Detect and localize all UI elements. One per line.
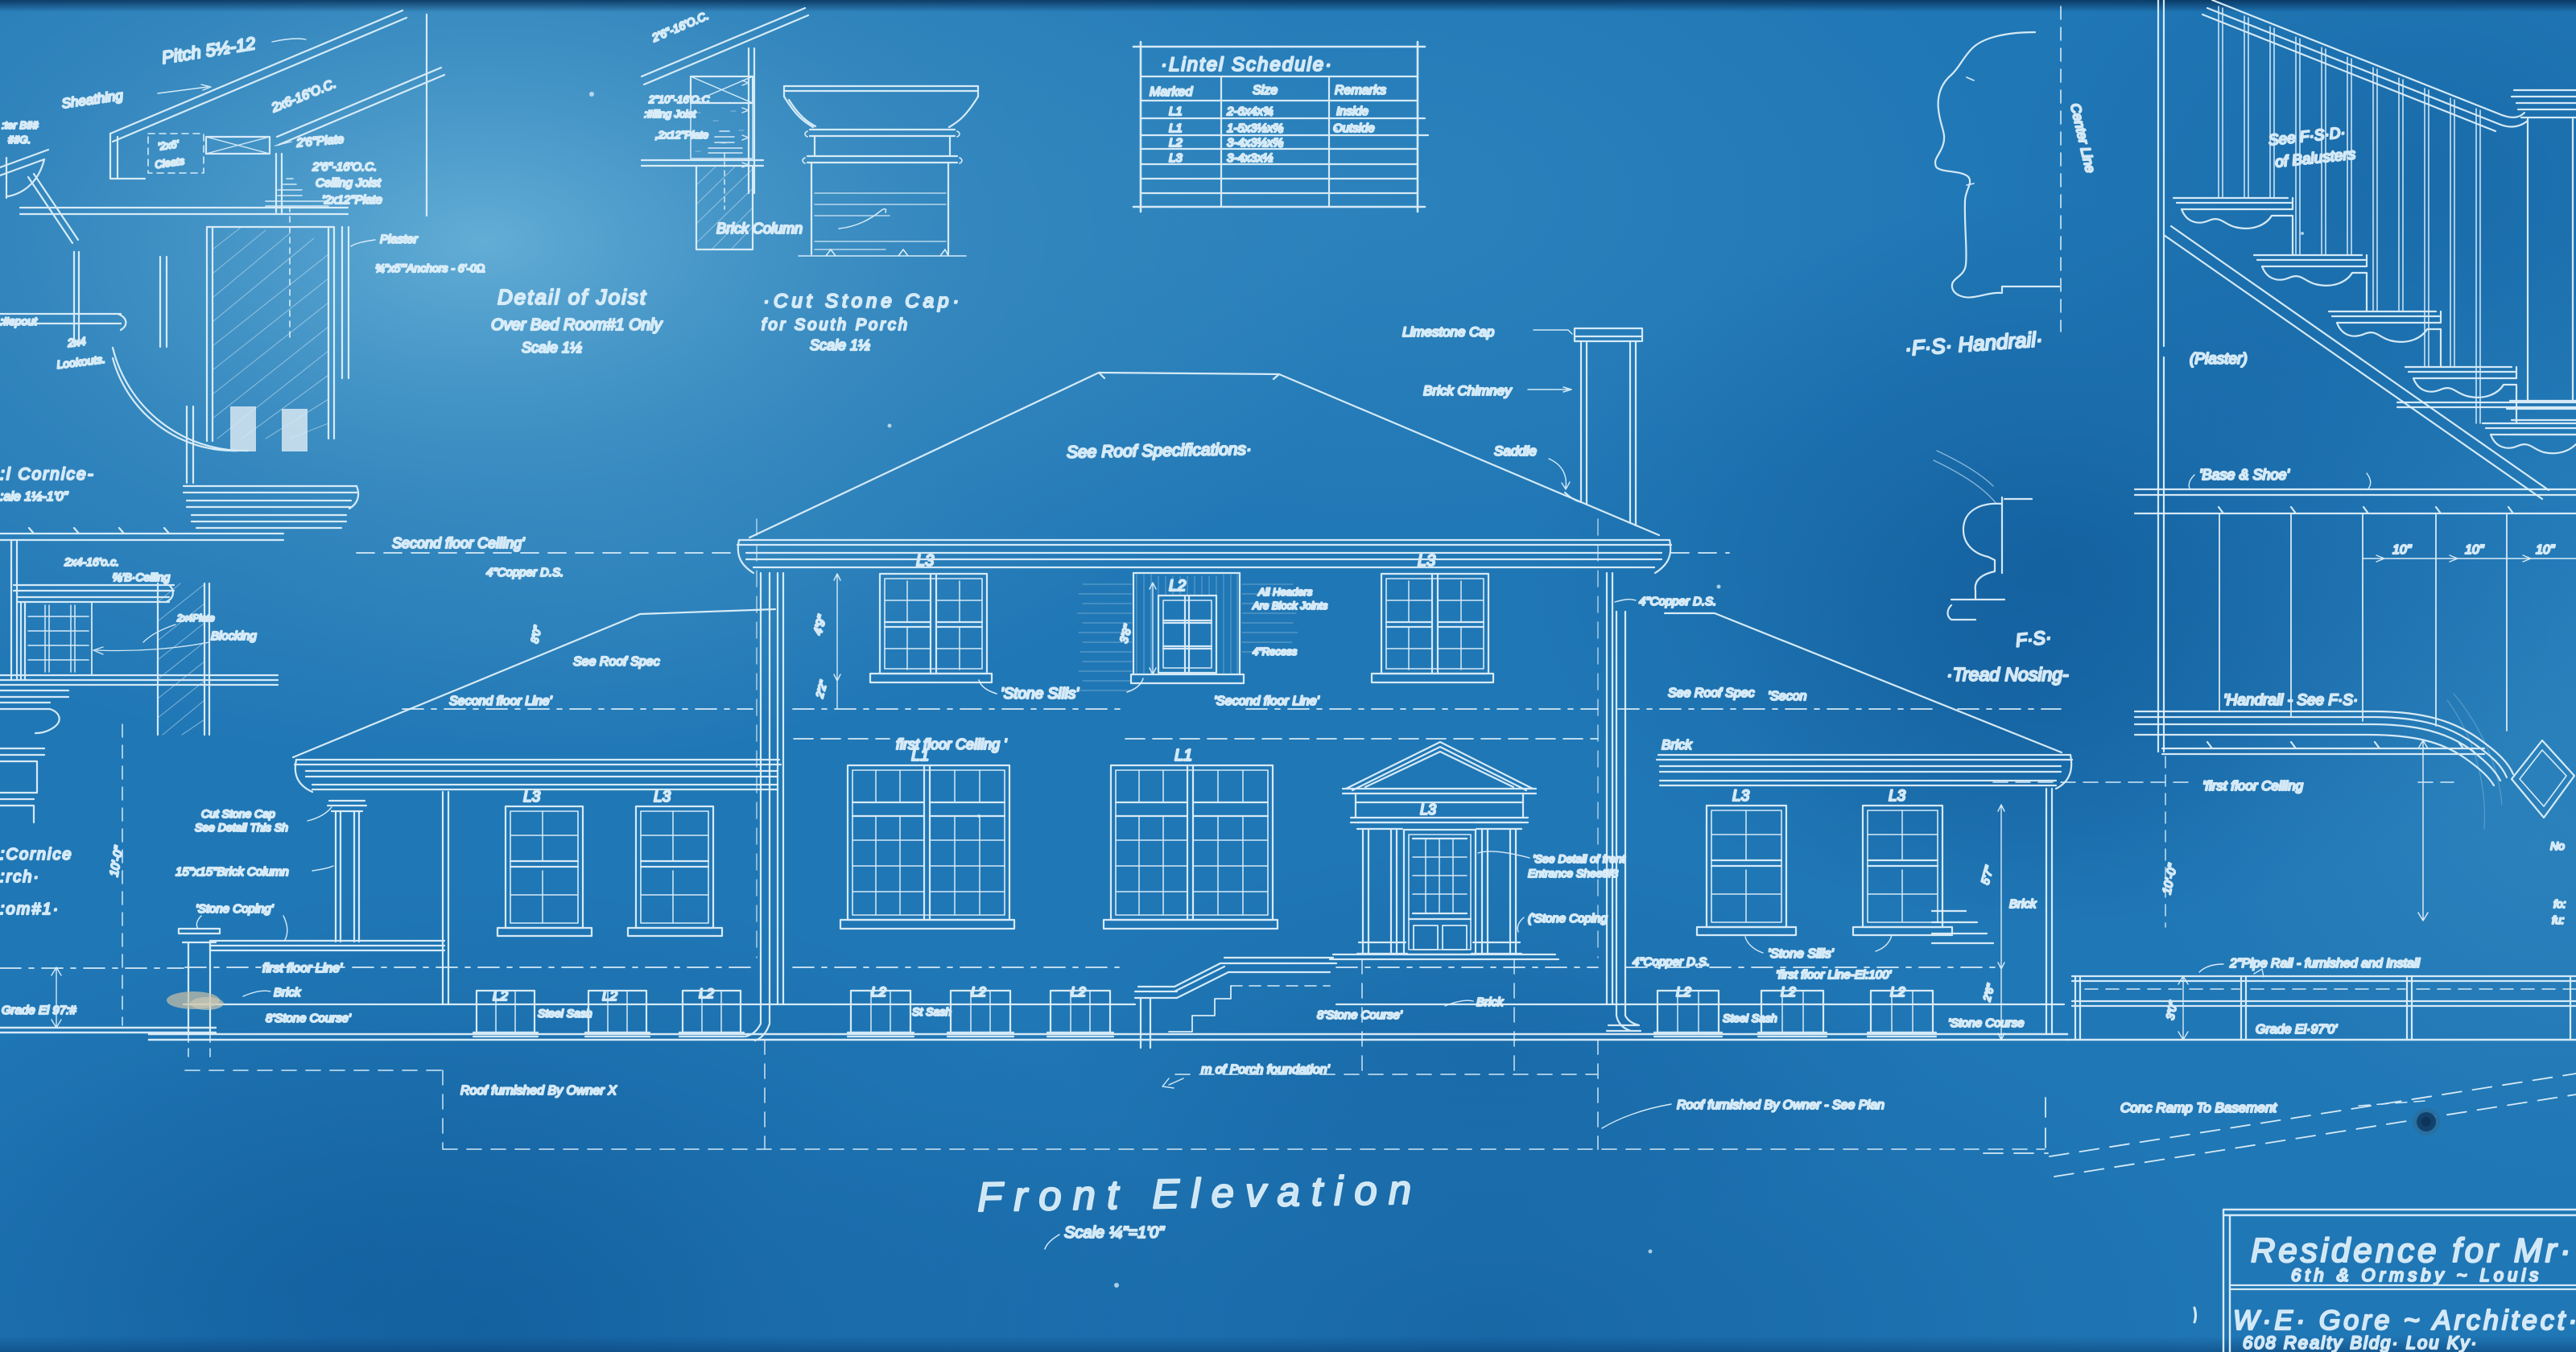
svg-text:L3: L3 [523,789,541,806]
svg-text:10": 10" [2536,543,2556,557]
svg-text:St Sash: St Sash [912,1005,952,1018]
svg-text:Saddle: Saddle [1494,443,1537,459]
svg-text:Inside: Inside [1336,105,1368,118]
svg-text:No: No [2550,839,2565,852]
svg-text:first floor Line': first floor Line' [262,962,343,975]
svg-text:2"10"-16'O.C: 2"10"-16'O.C [648,93,710,105]
svg-text::#spout: :#spout [0,315,38,328]
svg-text:8'Stone Course': 8'Stone Course' [1317,1008,1403,1022]
svg-text:Steel Sash: Steel Sash [1723,1012,1777,1024]
svg-text::rch·: :rch· [0,868,40,886]
svg-text:('Stone Coping: ('Stone Coping [1528,912,1608,925]
svg-text:10": 10" [2392,543,2413,557]
svg-text:L3: L3 [654,789,671,806]
svg-text:'Second floor Line': 'Second floor Line' [1214,695,1320,708]
svg-text:L1: L1 [1169,122,1183,135]
svg-text:3-4x3x½: 3-4x3x½ [1227,151,1274,165]
svg-text:'Base & Shoe': 'Base & Shoe' [2199,467,2290,483]
svg-text:L2: L2 [493,988,508,1004]
svg-text:6th & Ormsby ~ Louis: 6th & Ormsby ~ Louis [2291,1265,2542,1285]
svg-text:⅝'B·Ceiling: ⅝'B·Ceiling [113,571,170,583]
svg-text:2"Pipe Rail - furnished and In: 2"Pipe Rail - furnished and Install [2229,957,2420,971]
svg-text:L2: L2 [971,984,986,1000]
svg-text::ale 1½-1'0": :ale 1½-1'0" [0,490,69,504]
svg-text:¾"x5"'Anchors - 6'-0Ω: ¾"x5"'Anchors - 6'-0Ω [375,262,485,274]
svg-text:Front Elevation: Front Elevation [977,1166,1423,1220]
svg-text:m of Porch foundation': m of Porch foundation' [1201,1063,1331,1077]
svg-text:2x4: 2x4 [66,334,87,349]
svg-text:L1: L1 [1169,105,1183,118]
svg-text:L3: L3 [1418,552,1435,570]
svg-text:Brick: Brick [274,986,302,1000]
svg-text:4"Copper D.S.: 4"Copper D.S. [1639,595,1716,608]
svg-text:W·E· Gore ~ Architect·: W·E· Gore ~ Architect· [2233,1305,2576,1336]
svg-text:4"Copper D.S.: 4"Copper D.S. [1633,955,1710,969]
svg-text:'2x12"Plate: '2x12"Plate [322,193,382,207]
svg-text:Plaster: Plaster [380,233,419,246]
svg-text:Marked: Marked [1150,85,1193,99]
svg-text:4"Recess: 4"Recess [1253,645,1298,657]
svg-text:Brick: Brick [1476,995,1505,1009]
svg-text::l Cornice-: :l Cornice- [0,465,95,484]
svg-text:Brick Chimney: Brick Chimney [1423,383,1513,398]
svg-text:2x4Plate: 2x4Plate [176,612,215,624]
svg-text:Second floor Line': Second floor Line' [449,695,553,708]
svg-text:·Lintel Schedule·: ·Lintel Schedule· [1161,54,1333,76]
svg-text:'Stone Sills': 'Stone Sills' [1768,947,1835,961]
svg-text:Blocking: Blocking [211,629,257,643]
svg-text:Remarks: Remarks [1335,84,1386,97]
svg-text:F·S·: F·S· [2015,626,2053,651]
svg-text:L3: L3 [1420,802,1436,818]
svg-text:L2: L2 [699,986,714,1001]
svg-text:Conc Ramp To Basement: Conc Ramp To Basement [2120,1100,2277,1115]
svg-text::Cornice: :Cornice [0,846,72,864]
svg-text:'Stone Course: 'Stone Course [1948,1016,2025,1030]
svg-text:Ceiling Joist: Ceiling Joist [316,176,382,190]
svg-text:'Stone Sills': 'Stone Sills' [1001,686,1080,703]
svg-text:L2: L2 [871,984,886,1000]
svg-text:'Secon: 'Secon [1768,690,1807,703]
svg-text:Cut Stone Cap: Cut Stone Cap [201,807,275,820]
svg-text:Entrance Sheet#3: Entrance Sheet#3 [1528,867,1618,880]
svg-text:3-4x3½x⅝: 3-4x3½x⅝ [1227,136,1284,150]
svg-text:Second floor Ceiling': Second floor Ceiling' [392,535,525,551]
svg-text:Over Bed Room#1 Only: Over Bed Room#1 Only [491,316,663,334]
svg-text:Size: Size [1253,84,1278,97]
svg-text:'Handrail - See F·S·: 'Handrail - See F·S· [2223,692,2358,709]
svg-text:Steel Sash: Steel Sash [538,1007,592,1020]
svg-text:10": 10" [2465,543,2485,557]
svg-text:Are Block Joints: Are Block Joints [1252,600,1328,612]
svg-text:Residence for Mr·: Residence for Mr· [2251,1231,2574,1269]
svg-text:Scale 1½: Scale 1½ [810,337,870,353]
svg-text:608 Realty Bldg· Lou Ky·: 608 Realty Bldg· Lou Ky· [2243,1333,2479,1352]
svg-text:L2: L2 [1169,578,1187,595]
svg-text:'first floor Ceiling: 'first floor Ceiling [2202,778,2304,793]
svg-text:See Detail This Sh: See Detail This Sh [195,821,288,834]
svg-text:15"x15"Brick Column: 15"x15"Brick Column [175,865,289,879]
svg-text:See Roof Spec: See Roof Spec [573,655,660,669]
svg-text::ter B##: :ter B## [2,119,39,131]
svg-text:Brick Column: Brick Column [716,221,803,237]
svg-text:'Stone Coping': 'Stone Coping' [196,902,275,916]
svg-text:L2: L2 [1169,136,1183,150]
svg-text:L3: L3 [916,552,934,570]
svg-text:L3: L3 [1889,788,1906,805]
svg-text:1-5x3½x⅝: 1-5x3½x⅝ [1227,122,1284,135]
svg-text:All Headers: All Headers [1257,586,1313,598]
svg-text:L1: L1 [911,747,929,765]
svg-text:2'6"-16'O.C.: 2'6"-16'O.C. [312,160,377,174]
svg-text:L2: L2 [1781,984,1796,1000]
svg-text:L2: L2 [1676,984,1691,1000]
svg-text:Scale 1½: Scale 1½ [522,340,582,356]
svg-text:(Plaster): (Plaster) [2190,351,2248,368]
svg-text:Grade El 97:#: Grade El 97:# [2,1004,76,1017]
svg-text:Scale ¼"=1'0": Scale ¼"=1'0" [1064,1224,1165,1242]
svg-text:for South Porch: for South Porch [762,316,910,334]
svg-text:,2x12"Plate: ,2x12"Plate [655,129,708,141]
svg-text:'first floor Line-El:100': 'first floor Line-El:100' [1776,968,1892,982]
svg-text:See Roof Spec: See Roof Spec [1668,686,1755,700]
svg-text:L2: L2 [1071,984,1086,1000]
svg-text:2x4-16'o.c.: 2x4-16'o.c. [64,555,119,568]
svg-text:Grade El·97'0': Grade El·97'0' [2256,1023,2338,1037]
svg-text:L3: L3 [1169,151,1183,165]
svg-text::#iling Joist: :#iling Joist [644,108,697,120]
svg-text:·Cut Stone Cap·: ·Cut Stone Cap· [763,291,963,312]
svg-text:Outside: Outside [1333,122,1375,135]
svg-text:fu:: fu: [2552,913,2565,926]
svg-text:L2: L2 [602,988,617,1004]
svg-text:Detail of Joist: Detail of Joist [497,285,647,309]
svg-text:Limestone Cap: Limestone Cap [1402,324,1494,340]
svg-text:##G.: ##G. [8,134,31,146]
svg-text:·Tread Nosing-: ·Tread Nosing- [1946,664,2069,685]
svg-text:4"Copper D.S.: 4"Copper D.S. [486,566,563,579]
svg-text:fo:: fo: [2553,897,2566,910]
svg-text:Brick: Brick [1662,737,1693,752]
svg-text:See Roof Specifications·: See Roof Specifications· [1067,440,1252,462]
svg-text:Brick: Brick [2009,897,2037,911]
svg-text:8'Stone Course': 8'Stone Course' [266,1012,352,1025]
svg-text:L1: L1 [1174,747,1192,765]
svg-text:Roof furnished By Owner - See: Roof furnished By Owner - See Plan [1677,1098,1885,1112]
svg-text:'See Detail of front: 'See Detail of front [1533,852,1626,865]
svg-text::om#1·: :om#1· [0,901,60,918]
svg-text:L2: L2 [1890,984,1905,1000]
svg-text:L3: L3 [1732,788,1750,805]
svg-text:2-6x4x¾: 2-6x4x¾ [1226,105,1274,118]
svg-text:Roof furnished By Owner X: Roof furnished By Owner X [460,1084,617,1098]
